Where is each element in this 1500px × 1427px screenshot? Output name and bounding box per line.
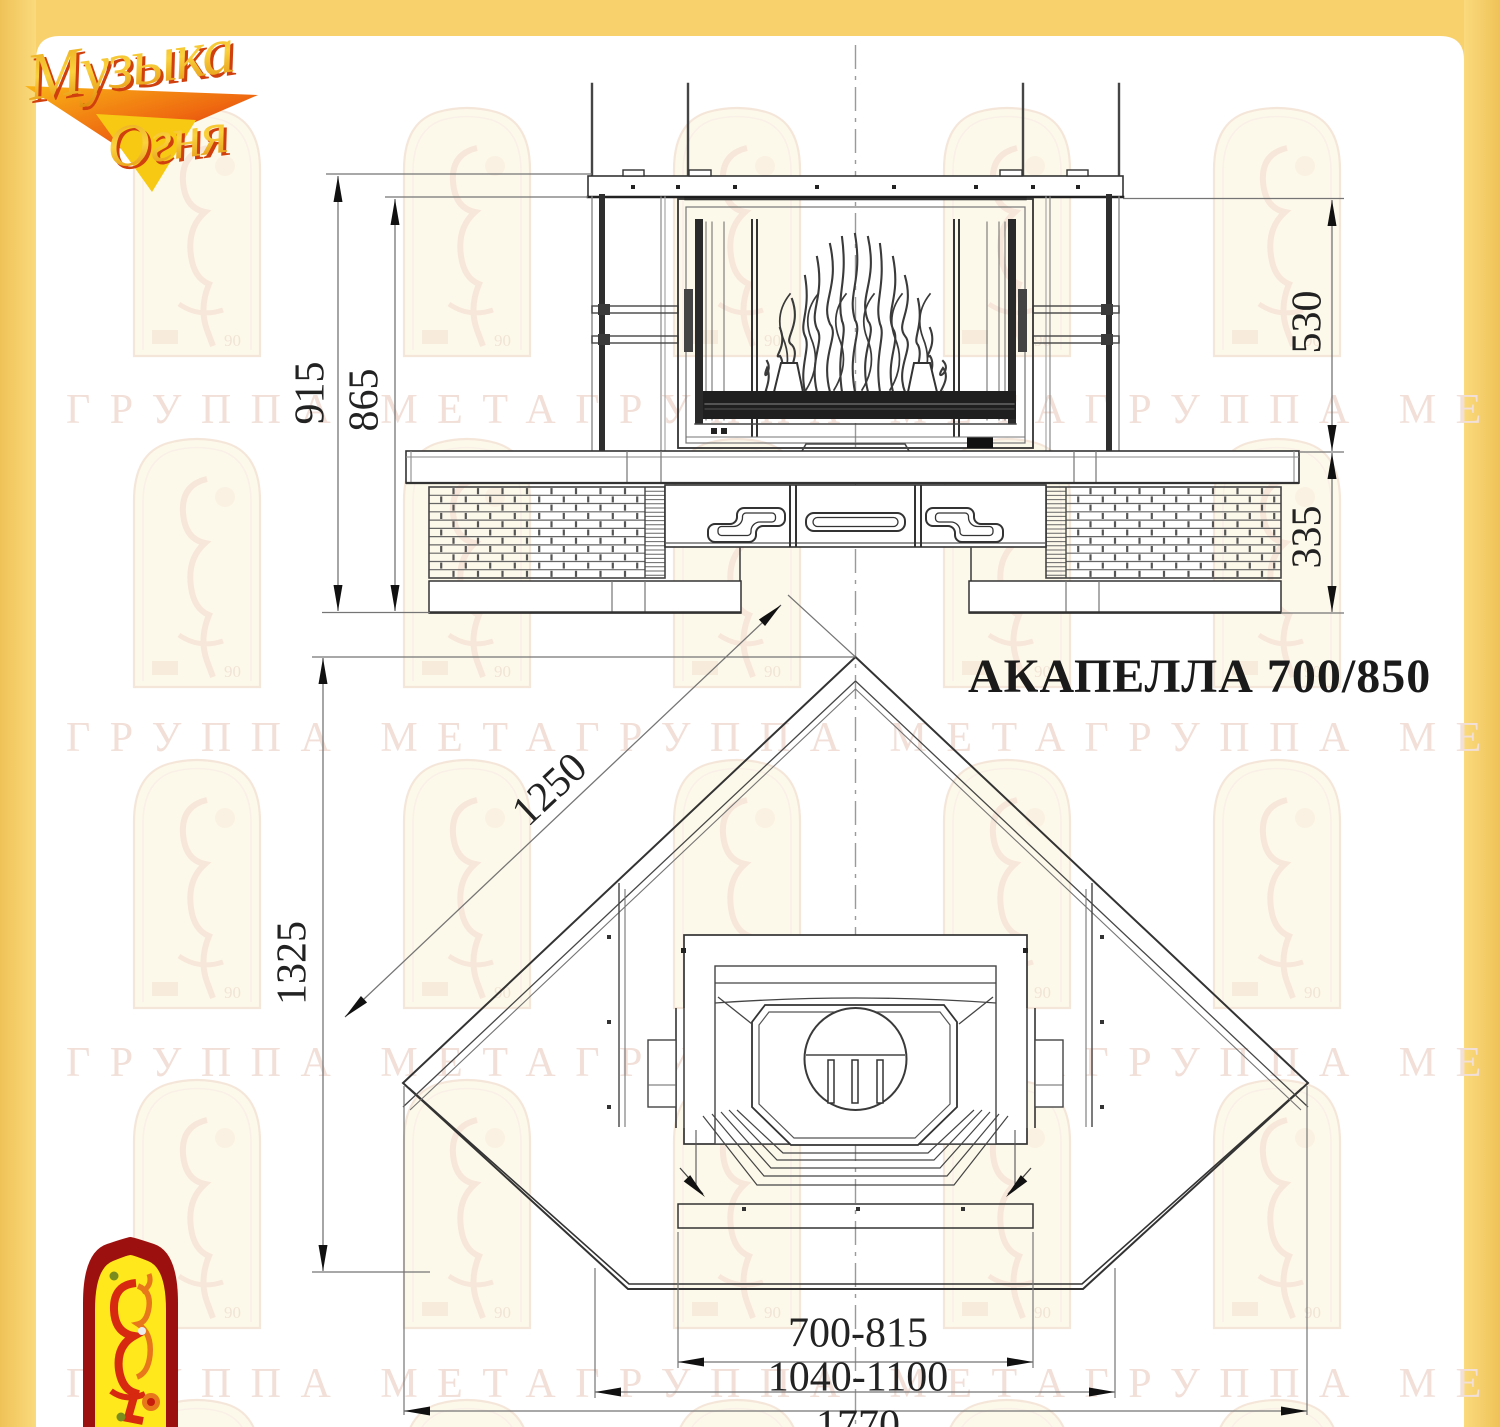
svg-text:90: 90 bbox=[764, 662, 781, 681]
svg-text:1770: 1770 bbox=[816, 1403, 900, 1427]
svg-text:865: 865 bbox=[342, 369, 388, 432]
svg-text:90: 90 bbox=[1034, 331, 1051, 350]
svg-text:90: 90 bbox=[224, 983, 241, 1002]
svg-text:700-815: 700-815 bbox=[788, 1311, 928, 1357]
svg-text:90: 90 bbox=[764, 331, 781, 350]
svg-text:90: 90 bbox=[494, 331, 511, 350]
svg-text:1040-1100: 1040-1100 bbox=[768, 1355, 948, 1401]
svg-text:335: 335 bbox=[1285, 506, 1331, 569]
svg-text:ГРУППА МЕТАГРУППА МЕТАГРУППА М: ГРУППА МЕТАГРУППА МЕТАГРУППА МЕТА bbox=[66, 715, 1500, 761]
svg-text:90: 90 bbox=[224, 662, 241, 681]
svg-text:530: 530 bbox=[1285, 291, 1331, 354]
svg-text:АКАПЕЛЛА 700/850: АКАПЕЛЛА 700/850 bbox=[968, 650, 1431, 703]
svg-text:1325: 1325 bbox=[270, 921, 316, 1005]
svg-text:90: 90 bbox=[764, 1303, 781, 1322]
svg-text:90: 90 bbox=[494, 1303, 511, 1322]
svg-text:915: 915 bbox=[288, 362, 334, 425]
svg-text:90: 90 bbox=[494, 662, 511, 681]
svg-text:90: 90 bbox=[1034, 1303, 1051, 1322]
svg-text:90: 90 bbox=[494, 983, 511, 1002]
svg-text:90: 90 bbox=[224, 331, 241, 350]
svg-text:90: 90 bbox=[1034, 983, 1051, 1002]
svg-text:90: 90 bbox=[1304, 983, 1321, 1002]
svg-text:90: 90 bbox=[224, 1303, 241, 1322]
